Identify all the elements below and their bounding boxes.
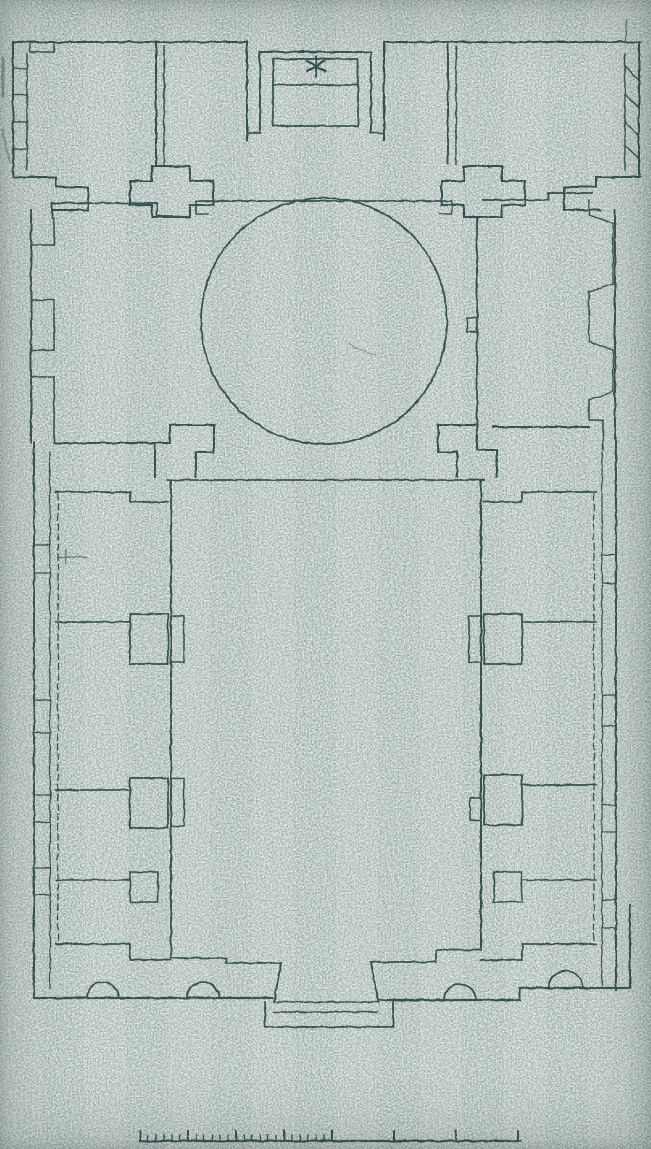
floor-plan-drawing <box>0 0 651 1149</box>
scanned-plan-page <box>0 0 651 1149</box>
